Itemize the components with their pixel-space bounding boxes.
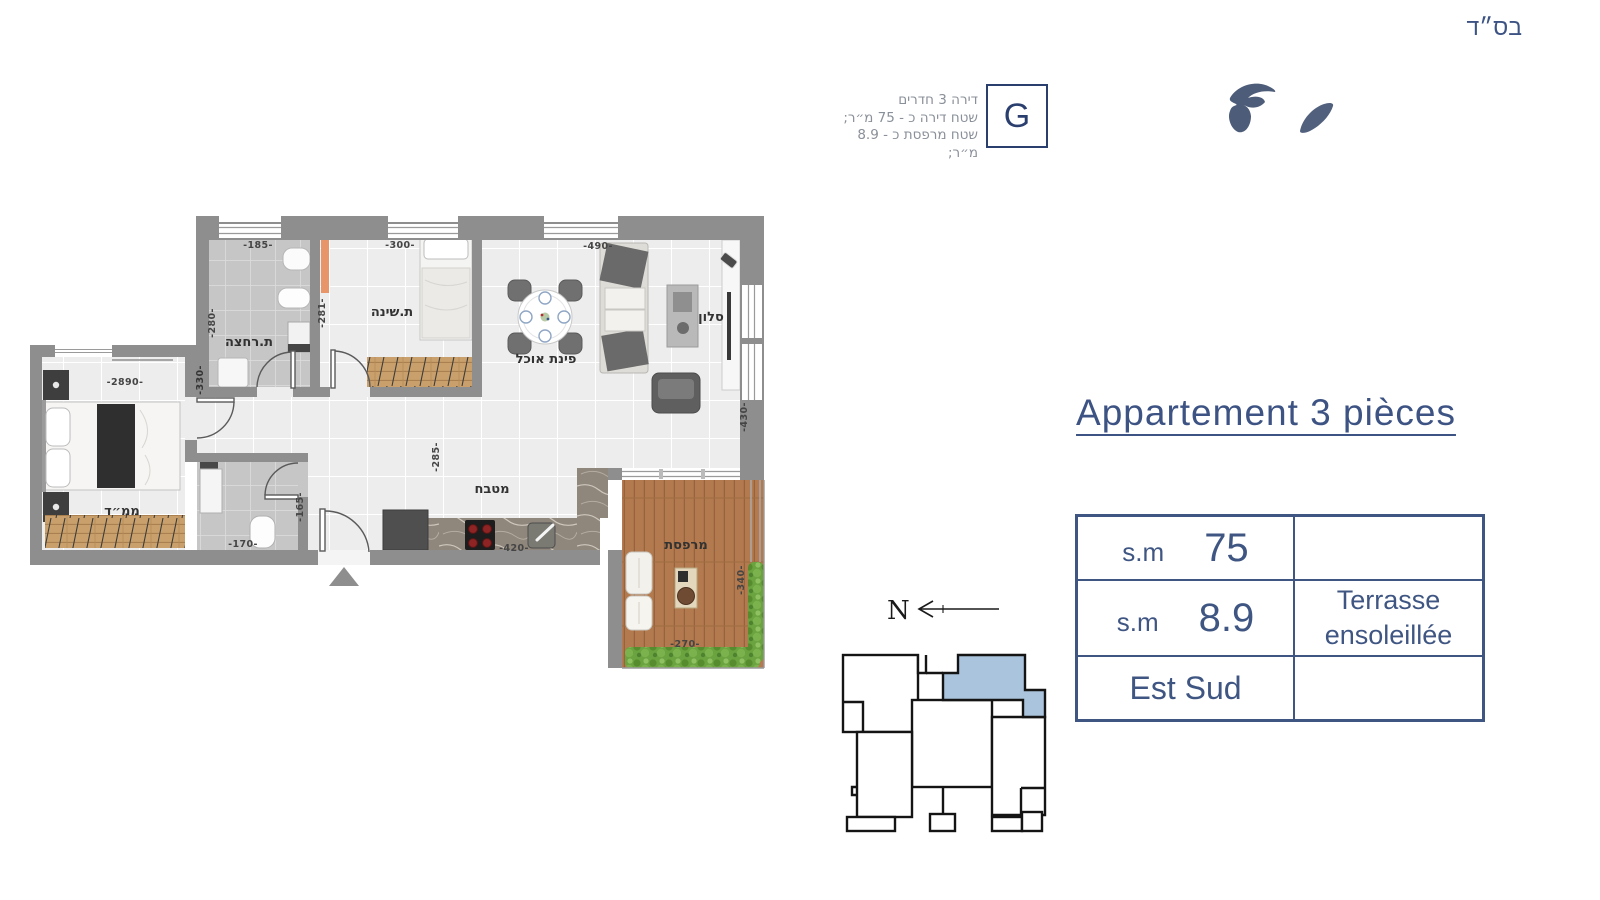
window (544, 224, 618, 238)
bird-icon (1300, 103, 1333, 133)
unit-header: דירה 3 חדרים שטח דירה כ - 75 מ״ר; שטח מר… (832, 84, 1048, 162)
dim-salon-depth: -430- (739, 402, 750, 432)
entrance-arrow (329, 567, 359, 586)
key-unit (843, 655, 918, 732)
dining-set (508, 280, 582, 354)
site-key-plan (820, 640, 1050, 838)
planter (748, 562, 764, 662)
table-cell-orientation: Est Sud (1078, 655, 1293, 719)
spec-line-terrace: שטח מרפסת כ - 8.9 מ״ר; (832, 127, 978, 162)
fridge (383, 510, 428, 550)
planter (625, 647, 760, 668)
room-label-terrace: מרפסת (664, 538, 708, 553)
sink (283, 248, 310, 270)
dim-salon-width: -490- (583, 241, 613, 252)
dim-bath-depth: -280- (207, 308, 218, 338)
key-unit (857, 732, 912, 817)
dim-mamad-width: -2890- (107, 377, 144, 388)
window (742, 285, 762, 400)
dim-wall: -330- (195, 365, 206, 395)
room-label-dining: פינת אוכל (516, 352, 577, 367)
dim-terrace-width: -270- (670, 639, 700, 650)
birds-illustration (1218, 76, 1338, 146)
terrace-note-line2: ensoleillée (1325, 618, 1453, 653)
vanity (200, 469, 222, 513)
dim-bedroom-depth: -281- (317, 298, 328, 328)
key-unit (912, 700, 992, 787)
terrace-note-line1: Terrasse (1325, 583, 1453, 618)
dim-bedroom-width: -300- (385, 240, 415, 251)
window (388, 224, 458, 238)
unit-spec-lines: דירה 3 חדרים שטח דירה כ - 75 מ״ר; שטח מר… (832, 92, 978, 162)
spec-line-rooms: דירה 3 חדרים (832, 92, 978, 110)
dim-hall-depth: -285- (431, 442, 442, 472)
table-cell-terrace: s.m8.9 (1078, 579, 1293, 655)
page: בס״ד דירה 3 חדרים שטח דירה כ - 75 מ״ר; ש… (0, 0, 1600, 900)
tv (727, 292, 731, 360)
summary-table: s.m75 s.m8.9 Terrasse ensoleillée Est Su… (1075, 514, 1485, 722)
area-value: 75 (1204, 526, 1249, 571)
area-unit-label: s.m (1122, 537, 1164, 568)
room-label-bedroom: ת.שינה (371, 305, 413, 320)
spec-line-area: שטח דירה כ - 75 מ״ר; (832, 110, 978, 128)
dim-wc-depth: -165- (295, 492, 306, 522)
window (219, 224, 281, 238)
apartment-title: Appartement 3 pièces (1040, 392, 1492, 434)
bird-icon (1229, 84, 1275, 133)
room-label-bathroom: ת.רחצה (225, 335, 273, 350)
unit-letter: G (1004, 97, 1030, 136)
north-arrow: N (885, 592, 1015, 628)
table-cell-orientation-note (1293, 655, 1482, 719)
cabinet (321, 237, 329, 293)
key-unit (992, 717, 1045, 815)
outdoor-sofa (626, 552, 652, 630)
room-label-kitchen: מטבח (474, 482, 509, 497)
terrace-unit-label: s.m (1117, 607, 1159, 638)
unit-letter-box: G (986, 84, 1048, 148)
table-cell-area: s.m75 (1078, 517, 1293, 579)
room-label-salon: סלון (698, 310, 724, 325)
room-label-mamad: ממ״ד (104, 504, 140, 519)
toilet (278, 288, 310, 308)
outdoor-table (675, 568, 697, 608)
floor-plan: ת.רחצה ת.שינה פינת אוכל סלון מטבח ממ״ד מ… (25, 210, 775, 680)
north-arrow-line (919, 601, 999, 617)
orientation-value: Est Sud (1129, 670, 1241, 707)
dim-wc-width: -170- (228, 539, 258, 550)
sliding-door (622, 468, 740, 480)
table-cell-area-note (1293, 517, 1482, 579)
shower (218, 358, 248, 387)
bsd-text: בס״ד (1467, 14, 1522, 41)
table-cell-terrace-note: Terrasse ensoleillée (1293, 579, 1482, 655)
dim-bath-width: -185- (243, 240, 273, 251)
dim-kitchen-width: -420- (499, 543, 529, 554)
terrace-value: 8.9 (1199, 596, 1255, 641)
dim-terrace-depth: -340- (736, 565, 747, 595)
north-label: N (887, 596, 910, 626)
